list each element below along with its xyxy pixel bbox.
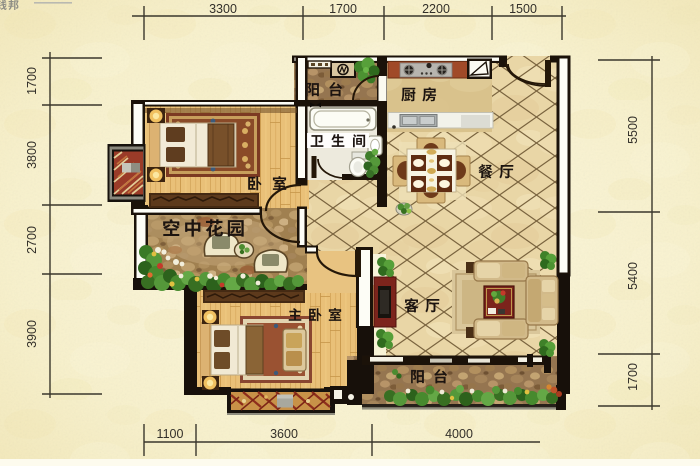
svg-text:1700: 1700 <box>25 67 39 95</box>
svg-text:3600: 3600 <box>270 427 298 441</box>
svg-text:2700: 2700 <box>25 226 39 254</box>
svg-text:1500: 1500 <box>509 2 537 16</box>
svg-text:3300: 3300 <box>209 2 237 16</box>
svg-text:5400: 5400 <box>626 262 640 290</box>
svg-text:3900: 3900 <box>25 320 39 348</box>
svg-text:3800: 3800 <box>25 141 39 169</box>
svg-text:1100: 1100 <box>157 427 184 441</box>
svg-text:4000: 4000 <box>445 427 473 441</box>
svg-text:5500: 5500 <box>626 116 640 144</box>
svg-text:1700: 1700 <box>329 2 357 16</box>
svg-text:1700: 1700 <box>626 363 640 391</box>
svg-text:2200: 2200 <box>422 2 450 16</box>
